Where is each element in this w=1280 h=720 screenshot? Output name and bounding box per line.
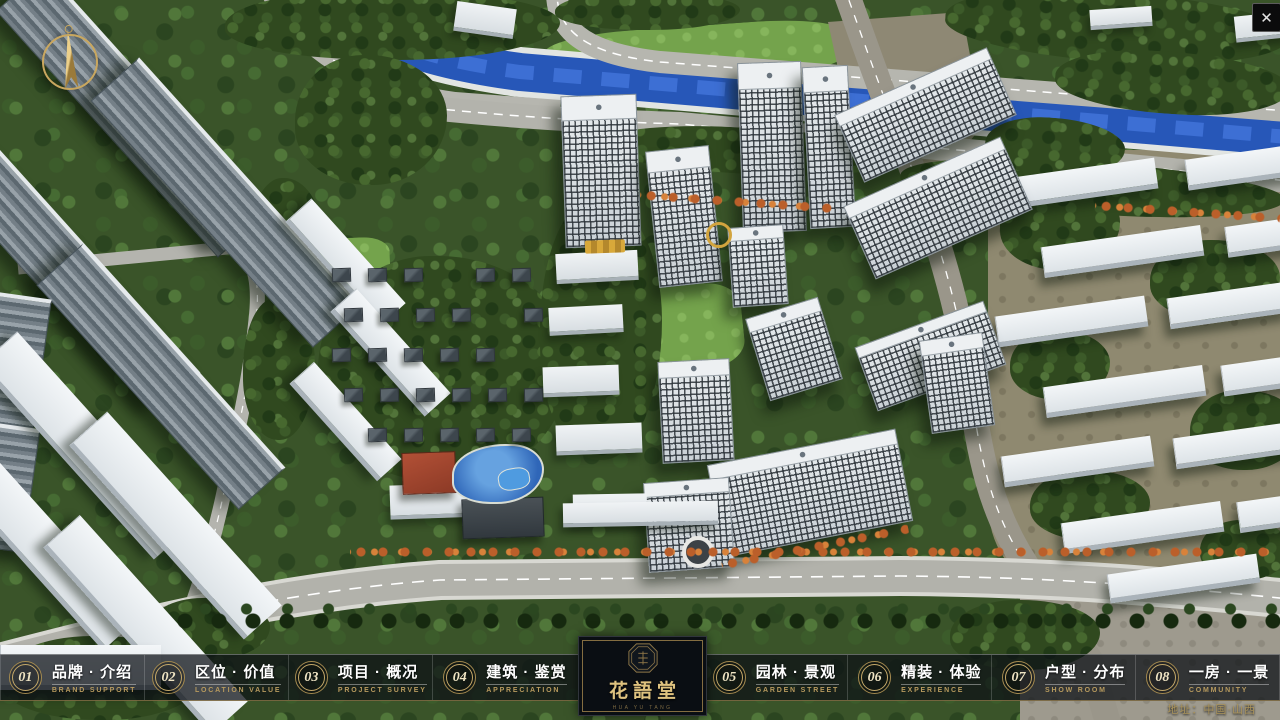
villa-house [524,388,543,403]
nav-label-zh: 精装 · 体验 [901,661,981,682]
low-rise-building [542,365,619,398]
villa-house [332,268,351,283]
nav-label-zh: 园林 · 景观 [756,661,839,682]
compass-north-indicator [40,32,100,92]
low-rise-building [563,501,718,528]
villa-house [368,428,387,443]
street-tree-row [168,592,1280,644]
villa-house [332,348,351,363]
nav-item-project-survey[interactable]: 03 项目 · 概况 PROJECT SURVEY [288,655,432,700]
aerial-masterplan-render [0,0,1280,720]
nav-label-en: SHOW ROOM [1045,684,1125,694]
project-logo-plaque[interactable]: 花語堂 HUA YU TANG [578,636,707,716]
villa-house [512,268,531,283]
villa-house [380,388,399,403]
close-button[interactable]: ✕ [1252,3,1280,32]
villa-house [476,268,495,283]
nav-number-badge: 05 [713,661,746,694]
villa-house [404,428,423,443]
project-address: 地址：中国·山西 [1167,701,1256,717]
villa-house [368,348,387,363]
villa-house [452,388,471,403]
residential-tower [657,358,734,464]
nav-number-badge: 07 [1002,661,1035,694]
nav-label-en: GARDEN STREET [756,684,839,694]
project-logo-subtitle: HUA YU TANG [613,705,673,711]
villa-house [440,428,459,443]
nav-label-zh: 户型 · 分布 [1045,661,1125,682]
nav-label-en: PROJECT SURVEY [338,684,427,694]
low-rise-building [555,250,638,284]
low-rise-building [556,423,643,456]
nav-label-zh: 品牌 · 介绍 [52,661,136,682]
nav-label-en: COMMUNITY [1189,684,1269,694]
nav-label-en: LOCATION VALUE [195,684,281,694]
red-building [401,451,456,495]
nav-group-right: 05 园林 · 景观 GARDEN STREET 06 精装 · 体验 EXPE… [704,655,1280,700]
nav-number-badge: 04 [443,661,476,694]
nav-number-badge: 06 [858,661,891,694]
nav-label-en: APPRECIATION [486,684,566,694]
project-logo-title: 花語堂 [604,676,681,703]
nav-item-room-view[interactable]: 08 一房 · 一景 COMMUNITY [1135,655,1280,700]
villa-house [476,348,495,363]
gold-art-feature [706,222,732,248]
gold-canopy [585,239,625,253]
nav-item-brand-intro[interactable]: 01 品牌 · 介绍 BRAND SUPPORT [0,655,144,700]
nav-item-garden-landscape[interactable]: 05 园林 · 景观 GARDEN STREET [704,655,848,700]
nav-label-zh: 一房 · 一景 [1189,661,1269,682]
villa-house [512,428,531,443]
nav-label-zh: 项目 · 概况 [338,661,427,682]
villa-house [440,348,459,363]
nav-item-architecture[interactable]: 04 建筑 · 鉴赏 APPRECIATION [432,655,576,700]
villa-house [416,308,435,323]
villa-house [488,388,507,403]
villa-house [416,388,435,403]
nav-number-badge: 01 [9,661,42,694]
nav-label-zh: 建筑 · 鉴赏 [486,661,566,682]
villa-house [524,308,543,323]
villa-house [344,388,363,403]
nav-label-en: EXPERIENCE [901,684,981,694]
nav-group-left: 01 品牌 · 介绍 BRAND SUPPORT 02 区位 · 价值 LOCA… [0,655,577,700]
nav-number-badge: 02 [152,661,185,694]
tree-cluster [295,55,447,185]
nav-item-location-value[interactable]: 02 区位 · 价值 LOCATION VALUE [144,655,288,700]
sales-presentation-window: ✕ 01 品牌 · 介绍 BRAND SUPPORT 02 区位 · 价值 LO… [0,0,1280,720]
nav-number-badge: 03 [295,661,328,694]
villa-house [476,428,495,443]
octagon-seal-icon [627,642,659,674]
residential-tower [919,332,995,434]
villa-house [404,268,423,283]
nav-item-interior-experience[interactable]: 06 精装 · 体验 EXPERIENCE [847,655,991,700]
villa-house [404,348,423,363]
residential-tower [727,224,788,308]
villa-house [380,308,399,323]
nav-label-zh: 区位 · 价值 [195,661,281,682]
compass-ring [40,32,100,92]
villa-house [452,308,471,323]
nav-label-en: BRAND SUPPORT [52,684,136,694]
villa-house [344,308,363,323]
low-rise-building [548,304,623,336]
villa-house [368,268,387,283]
residential-tower [560,94,641,249]
nav-item-floorplans[interactable]: 07 户型 · 分布 SHOW ROOM [991,655,1135,700]
nav-number-badge: 08 [1146,661,1179,694]
close-icon: ✕ [1260,9,1273,27]
